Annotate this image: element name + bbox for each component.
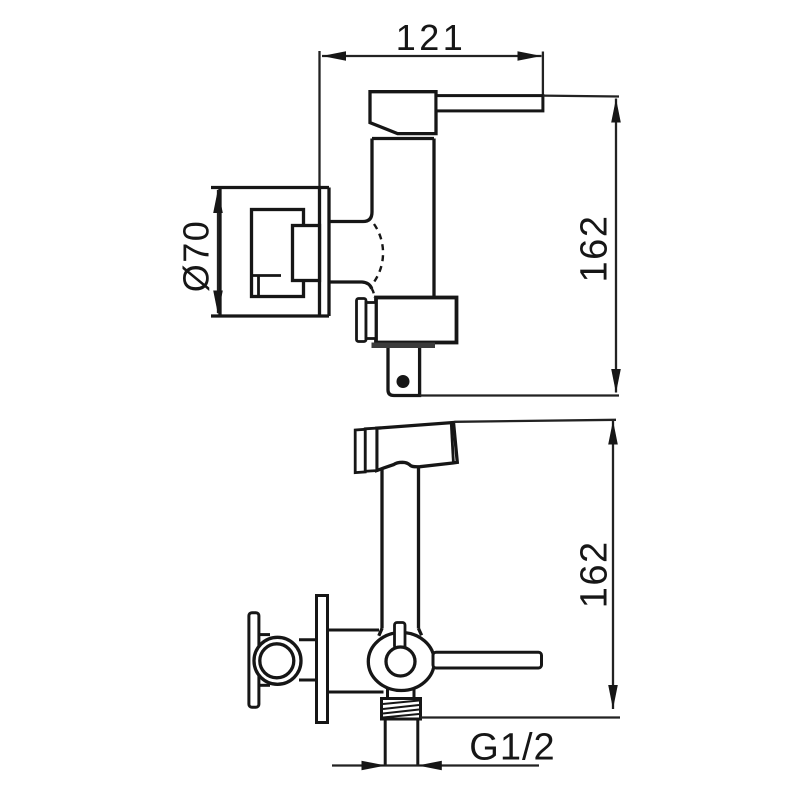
svg-text:162: 162 [574, 215, 616, 283]
svg-text:121: 121 [396, 17, 467, 58]
svg-text:Ø70: Ø70 [176, 220, 217, 293]
svg-text:162: 162 [574, 540, 616, 608]
svg-text:G1/2: G1/2 [469, 727, 555, 769]
